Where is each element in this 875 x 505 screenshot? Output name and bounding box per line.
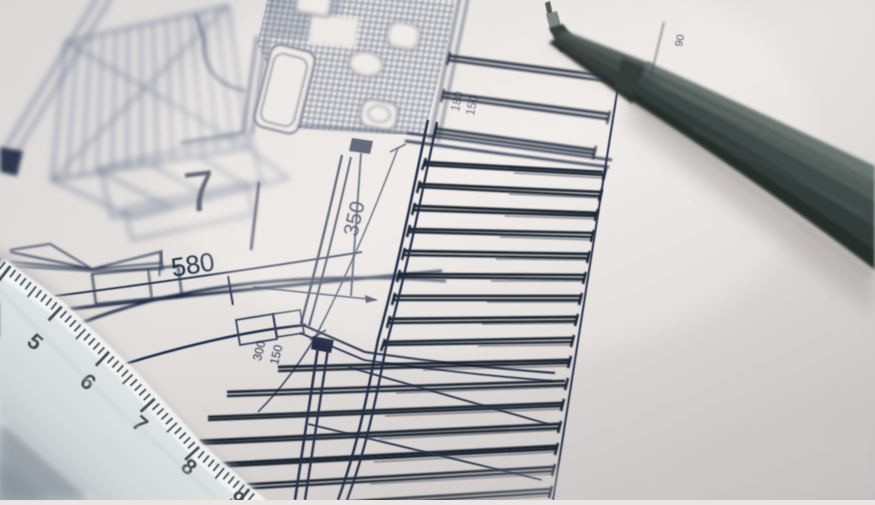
- svg-text:90: 90: [673, 33, 687, 47]
